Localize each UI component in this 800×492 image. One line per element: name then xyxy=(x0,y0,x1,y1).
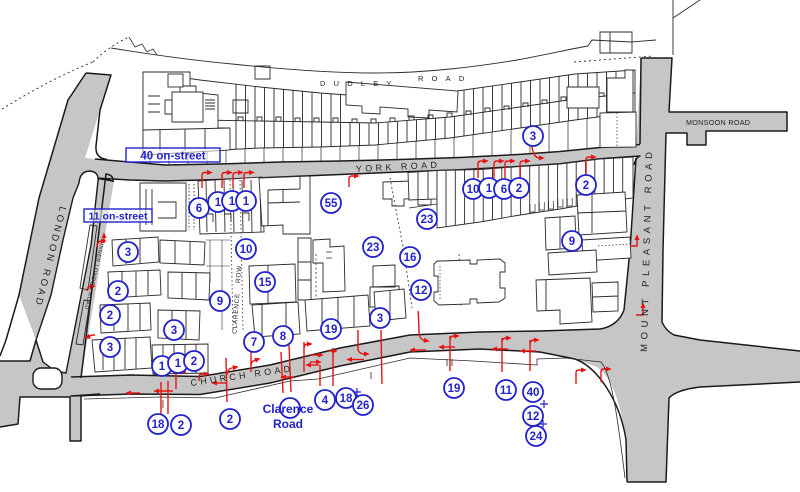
svg-text:24: 24 xyxy=(530,431,543,443)
svg-text:2: 2 xyxy=(115,286,121,298)
svg-text:18: 18 xyxy=(152,419,165,431)
svg-text:2: 2 xyxy=(227,414,233,426)
svg-text:2: 2 xyxy=(191,356,197,368)
svg-text:3: 3 xyxy=(107,342,113,354)
svg-text:Road: Road xyxy=(273,417,303,431)
svg-text:11: 11 xyxy=(500,385,513,397)
svg-text:3: 3 xyxy=(530,131,536,143)
svg-text:2: 2 xyxy=(178,420,184,432)
svg-text:1: 1 xyxy=(215,197,222,209)
svg-text:11 on-street: 11 on-street xyxy=(89,211,148,223)
svg-text:3: 3 xyxy=(377,313,383,325)
svg-text:1: 1 xyxy=(486,183,493,195)
svg-text:10: 10 xyxy=(240,244,253,256)
svg-text:19: 19 xyxy=(448,383,461,395)
svg-text:23: 23 xyxy=(367,242,380,254)
svg-text:18: 18 xyxy=(340,393,353,405)
svg-text:19: 19 xyxy=(325,324,338,336)
svg-text:9: 9 xyxy=(569,236,575,248)
svg-text:DUDLEY: DUDLEY xyxy=(320,79,400,88)
svg-text:1: 1 xyxy=(175,358,182,370)
svg-text:9: 9 xyxy=(217,296,223,308)
svg-text:12: 12 xyxy=(415,285,428,297)
svg-text:3: 3 xyxy=(125,247,131,259)
svg-text:1: 1 xyxy=(229,196,236,208)
svg-text:26: 26 xyxy=(357,400,370,412)
svg-text:ROAD: ROAD xyxy=(418,74,472,83)
svg-text:4: 4 xyxy=(322,395,329,407)
svg-text:40: 40 xyxy=(527,387,540,399)
svg-text:2: 2 xyxy=(583,180,589,192)
svg-text:40 on-street: 40 on-street xyxy=(140,151,205,163)
svg-text:MONSOON ROAD: MONSOON ROAD xyxy=(686,118,750,127)
svg-text:Clarence: Clarence xyxy=(263,402,314,416)
svg-text:23: 23 xyxy=(421,214,434,226)
svg-text:15: 15 xyxy=(259,277,272,289)
svg-text:2: 2 xyxy=(107,310,113,322)
svg-text:8: 8 xyxy=(280,331,287,343)
svg-text:3: 3 xyxy=(171,325,177,337)
svg-text:2: 2 xyxy=(516,183,522,195)
svg-text:1: 1 xyxy=(159,361,166,373)
svg-text:16: 16 xyxy=(404,252,417,264)
svg-text:10: 10 xyxy=(467,184,480,196)
svg-text:12: 12 xyxy=(527,411,540,423)
svg-text:6: 6 xyxy=(501,184,507,196)
svg-text:55: 55 xyxy=(325,198,338,210)
svg-text:6: 6 xyxy=(196,203,202,215)
svg-text:1: 1 xyxy=(243,196,250,208)
svg-text:7: 7 xyxy=(251,337,257,349)
